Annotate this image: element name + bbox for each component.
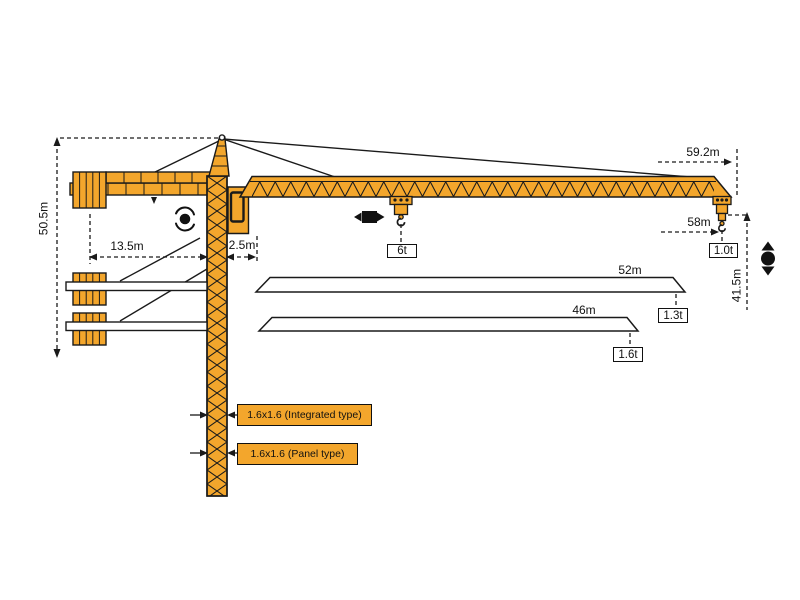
- load-1-0t-value: 1.0t: [714, 245, 733, 257]
- jib-length-bars: [256, 278, 685, 332]
- mast-section-panel-label: 1.6x1.6 (Panel type): [237, 443, 358, 465]
- jib-52m-label: 52m: [606, 264, 654, 277]
- load-badge-1-0t: 1.0t: [709, 243, 738, 258]
- mast-section-integrated-label: 1.6x1.6 (Integrated type): [237, 404, 372, 426]
- counterweight-assembly-1: [66, 273, 207, 305]
- crane-drawing: [0, 0, 800, 600]
- dim-tower-height-label: 50.5m: [38, 195, 51, 243]
- tie-rods: [151, 139, 690, 177]
- dim-slew-clearance-label: 2.5m: [222, 239, 262, 252]
- load-badge-6t: 6t: [387, 244, 417, 258]
- dim-counter-jib-label: 13.5m: [103, 240, 151, 253]
- trolley-travel-icon: [354, 211, 385, 223]
- load-6t-value: 6t: [397, 245, 407, 257]
- dim-jib-tip-radius-label: 59.2m: [679, 146, 727, 159]
- mast-panel-text: 1.6x1.6 (Panel type): [251, 448, 345, 460]
- dim-max-hook-radius-label: 58m: [681, 216, 717, 229]
- hook-travel-icon: [761, 242, 775, 276]
- cat-head: [209, 135, 229, 176]
- load-badge-1-6t: 1.6t: [613, 347, 643, 362]
- counterweight-block: [73, 172, 106, 208]
- jib-bar-46m: [259, 318, 638, 332]
- counter-jib: [70, 172, 214, 208]
- ballast-beam-1: [66, 282, 207, 291]
- rotation-icon: [176, 207, 194, 230]
- mid-trolley: [390, 197, 412, 226]
- pendant-arrow: [151, 197, 157, 204]
- tower-mast: [207, 176, 227, 496]
- ballast-beam-2: [66, 322, 207, 331]
- load-1-6t-value: 1.6t: [618, 349, 637, 361]
- jib-bar-52m: [256, 278, 685, 293]
- jib-46m-label: 46m: [560, 304, 608, 317]
- apex-pin: [219, 135, 224, 140]
- main-jib: [240, 177, 731, 198]
- counterweight-assembly-2: [66, 313, 207, 345]
- crane-diagram: 50.5m 13.5m 2.5m 59.2m 58m 41.5m 52m 46m…: [0, 0, 800, 600]
- dim-hook-height-label: 41.5m: [731, 262, 744, 310]
- mast-integrated-text: 1.6x1.6 (Integrated type): [247, 409, 361, 421]
- load-badge-1-3t: 1.3t: [658, 308, 688, 323]
- load-1-3t-value: 1.3t: [663, 310, 682, 322]
